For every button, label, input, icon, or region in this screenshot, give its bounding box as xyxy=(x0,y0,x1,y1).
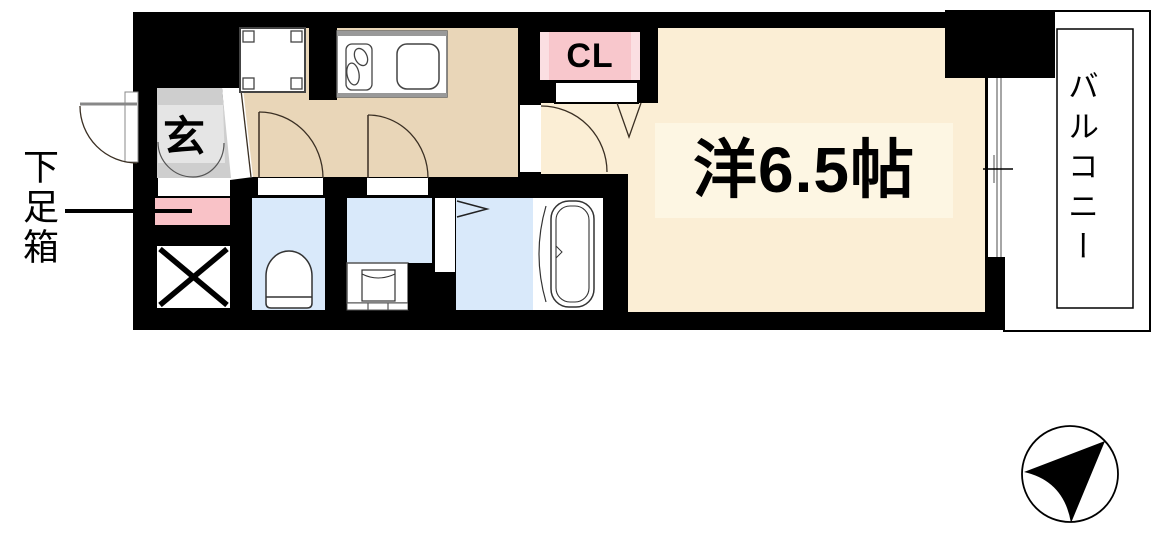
floorplan: 玄 CL 洋6.5帖 バルコニー 下足箱 xyxy=(0,0,1161,538)
wall-corner-block xyxy=(945,10,1055,78)
sink-icon xyxy=(397,44,439,89)
kitchen-counter-icon xyxy=(337,31,447,97)
pipe-space-icon xyxy=(157,246,230,308)
closet-shelf xyxy=(555,82,638,103)
toilet-icon xyxy=(266,251,312,308)
wall-stub-kitchen xyxy=(309,12,337,100)
closet-label: CL xyxy=(540,32,640,80)
washer-pan-icon xyxy=(240,28,305,92)
washstand-icon xyxy=(347,263,408,310)
room-door-opening xyxy=(520,105,541,172)
washroom-door-opening xyxy=(367,178,428,195)
room-size-label: 洋6.5帖 xyxy=(655,123,953,218)
entrance-label: 玄 xyxy=(160,112,208,162)
entrance-step xyxy=(158,178,230,196)
wall-jog-washroom xyxy=(408,263,435,310)
balcony-label: バルコニー xyxy=(1063,70,1103,300)
bath-door-leaf xyxy=(435,198,455,272)
toilet-door-opening xyxy=(258,178,323,195)
floorplan-drawing xyxy=(0,0,1161,538)
compass-icon xyxy=(1022,426,1118,523)
shoebox-label: 下足箱 xyxy=(18,148,64,278)
wall-below-bathdoor xyxy=(433,270,455,310)
